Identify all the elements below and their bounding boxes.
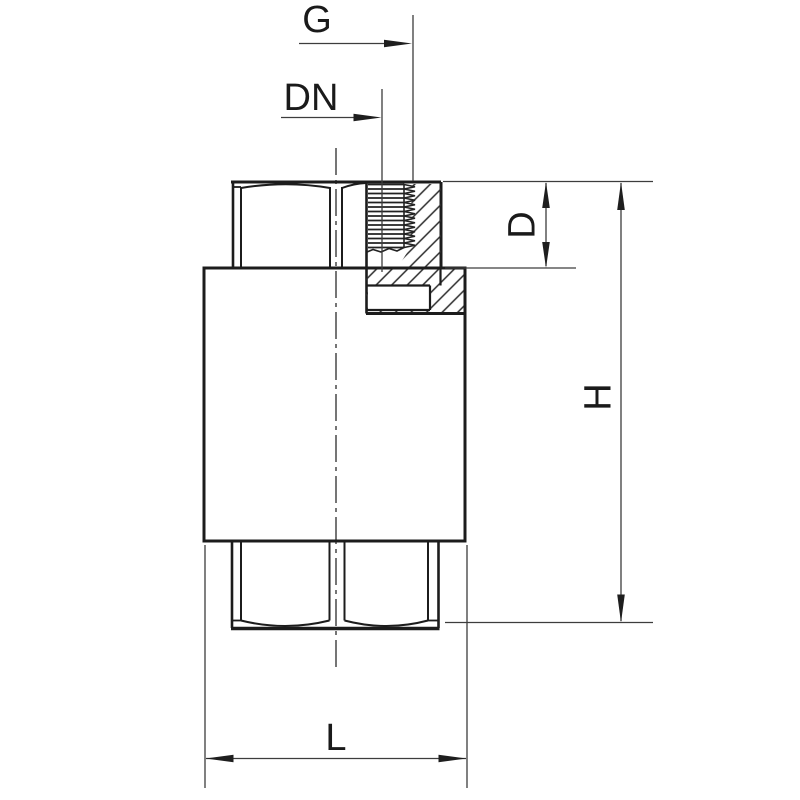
dimension-d-label: D <box>501 211 543 238</box>
dimension-g-label: G <box>302 0 332 41</box>
seat-hatching <box>366 268 465 314</box>
seat-section <box>366 268 465 314</box>
bottom-hex-face-arc-left <box>241 621 330 627</box>
dimension-l-arrowhead-right <box>439 755 467 763</box>
dimension-h-arrowhead-up <box>617 182 625 210</box>
dimension-d-arrowhead-down <box>542 242 550 268</box>
dimension-h-arrowhead-down <box>617 595 625 623</box>
technical-drawing-canvas: G DN D H L <box>0 0 800 800</box>
dimension-h: H <box>445 182 653 623</box>
top-hex-face-arc-left <box>241 184 330 188</box>
bottom-hex-face-arc-right <box>345 621 429 627</box>
dimension-l-arrowhead-left <box>206 755 234 763</box>
top-hex-face-arc-right <box>342 183 366 188</box>
dimension-l-label: L <box>325 717 346 759</box>
dimension-g-arrowhead <box>384 40 412 48</box>
female-thread <box>367 185 415 253</box>
dimension-d-arrowhead-up <box>542 182 550 208</box>
bottom-hex <box>231 541 440 629</box>
dimension-dn-label: DN <box>284 77 339 119</box>
check-valve-section-drawing: G DN D H L <box>0 0 800 800</box>
dimension-dn-arrowhead <box>354 114 382 122</box>
thread-lines <box>368 185 404 248</box>
dimension-h-label: H <box>577 383 619 410</box>
